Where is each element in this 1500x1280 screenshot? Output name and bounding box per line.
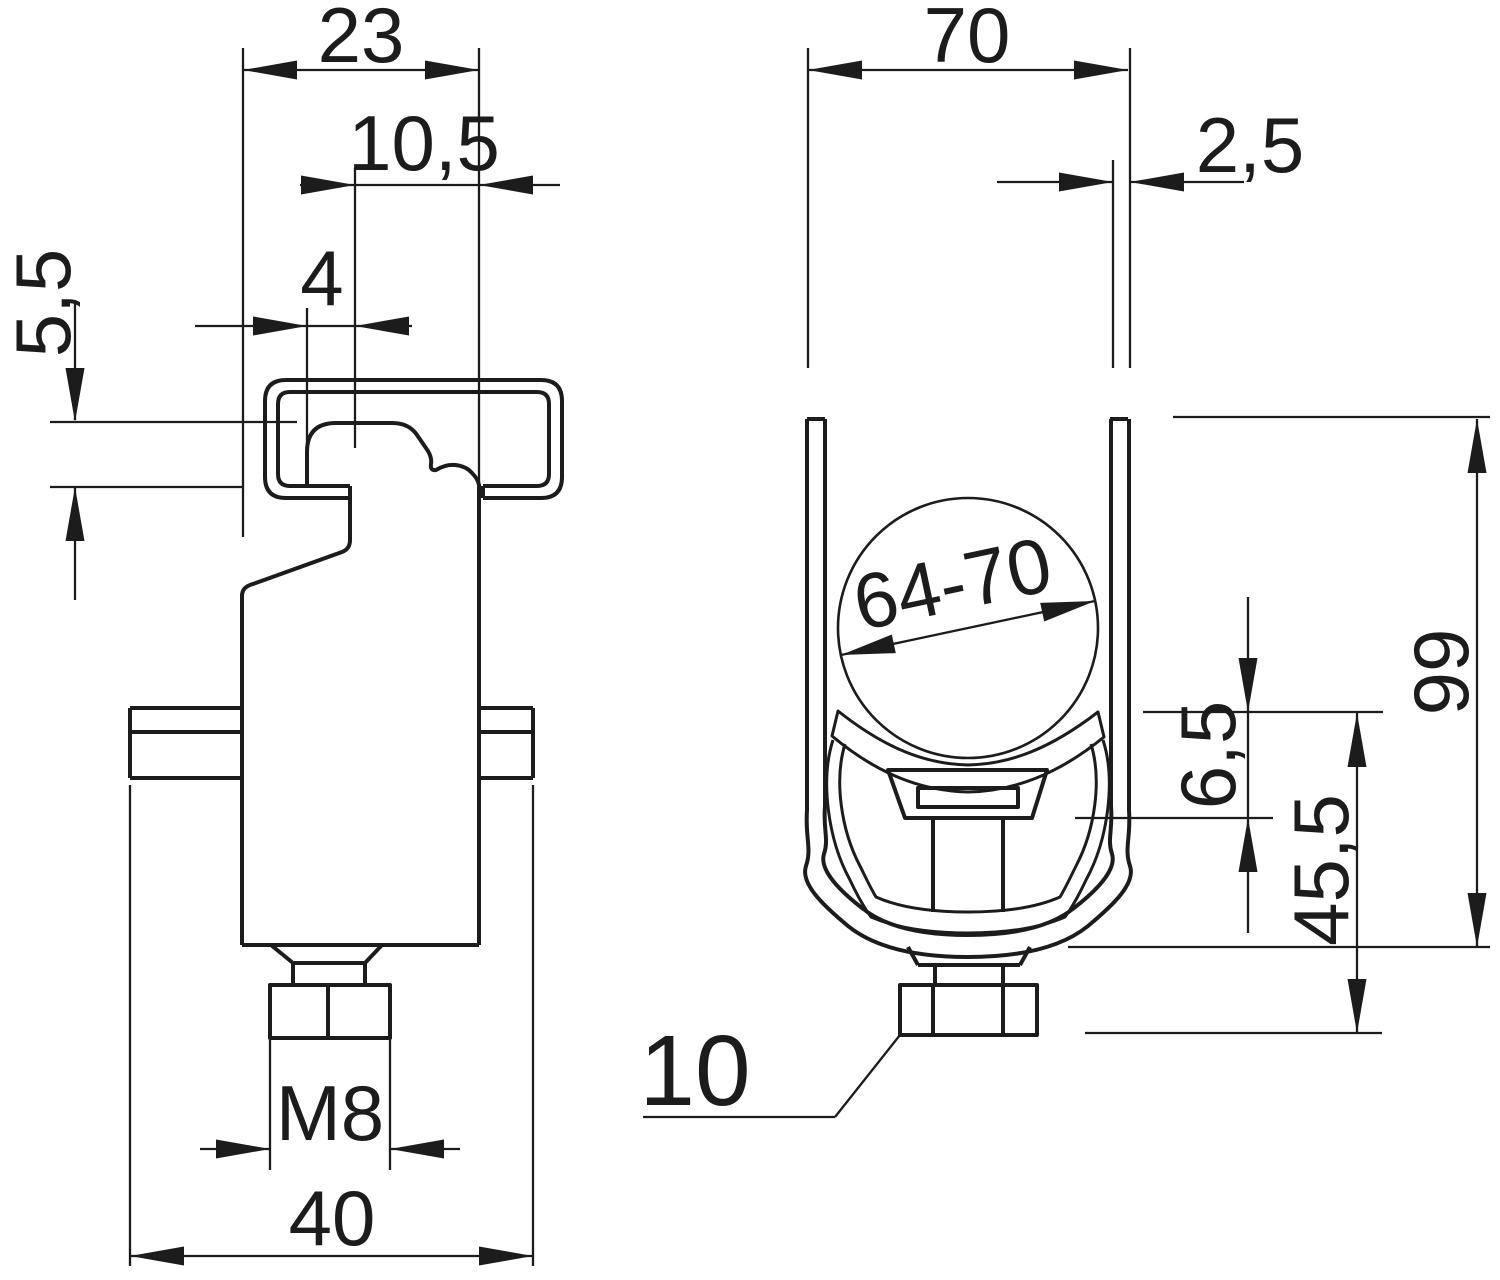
dimension-arrowhead (130, 1247, 184, 1266)
rail-profile-inner (278, 392, 549, 486)
dimension-arrowhead (66, 487, 85, 541)
side-view (130, 380, 562, 1038)
dimension-arrowhead (1074, 61, 1128, 80)
dim-strap-offset: 6,5 (1164, 701, 1252, 809)
dim-total-height: 99 (1397, 629, 1485, 716)
dimension-arrowhead (390, 1140, 444, 1159)
dim-thread: M8 (276, 1069, 384, 1157)
pressure-plate (888, 770, 1047, 818)
dimension-arrowhead (1059, 173, 1113, 192)
dimension-arrowhead (253, 317, 307, 336)
dim-base-width: 40 (289, 1174, 376, 1262)
dimension-arrowhead (479, 1247, 533, 1266)
front-view (805, 419, 1131, 1035)
dimension-arrowhead (808, 61, 862, 80)
dimension-arrowhead (425, 61, 479, 80)
dimension-arrowhead (243, 61, 297, 80)
hex-nut-side (270, 985, 390, 1038)
side-flange-left (130, 708, 242, 778)
dimension-arrowhead (216, 1140, 270, 1159)
dimension-arrowhead (1348, 979, 1367, 1033)
dimension-arrowhead (1468, 893, 1487, 947)
dimension-arrowhead (1348, 713, 1367, 767)
dim-wall-thickness: 2,5 (1196, 101, 1304, 189)
dim-nut-size: 10 (639, 1015, 750, 1127)
dimension-lines-front (643, 48, 1490, 1117)
dimension-arrowhead (301, 176, 355, 195)
rail-lip-ends (350, 486, 483, 498)
dim-lower-height: 45,5 (1277, 794, 1365, 946)
dim-opening-width: 70 (924, 0, 1011, 79)
dim-head-offset: 10,5 (348, 99, 500, 187)
clamp-technical-drawing: 23 10,5 4 5,5 M8 40 70 2,5 64-70 99 6,5 … (0, 0, 1500, 1280)
dim-head-width: 23 (318, 0, 405, 79)
dimension-arrowhead (1468, 419, 1487, 473)
dimension-labels: 23 10,5 4 5,5 M8 40 70 2,5 64-70 99 6,5 … (0, 0, 1485, 1262)
hex-nut-front (900, 985, 1037, 1035)
dim-clamp-range: 64-70 (846, 520, 1059, 648)
clamp-head-profile (307, 423, 479, 945)
dimension-arrowhead (66, 368, 85, 422)
drawing-canvas: 23 10,5 4 5,5 M8 40 70 2,5 64-70 99 6,5 … (0, 0, 1500, 1280)
saddle-strap (832, 711, 1104, 792)
bolt-flange (271, 945, 382, 985)
center-stem (933, 818, 1003, 912)
dim-head-height: 5,5 (0, 249, 87, 357)
dimension-arrowhead (355, 317, 409, 336)
dimension-arrowhead (1130, 173, 1184, 192)
dimension-arrowhead (1239, 818, 1258, 872)
body-left-outline (242, 498, 350, 945)
shell-inner (823, 419, 1112, 935)
dim-slot-width: 4 (300, 234, 343, 322)
side-flange-right (479, 708, 533, 778)
